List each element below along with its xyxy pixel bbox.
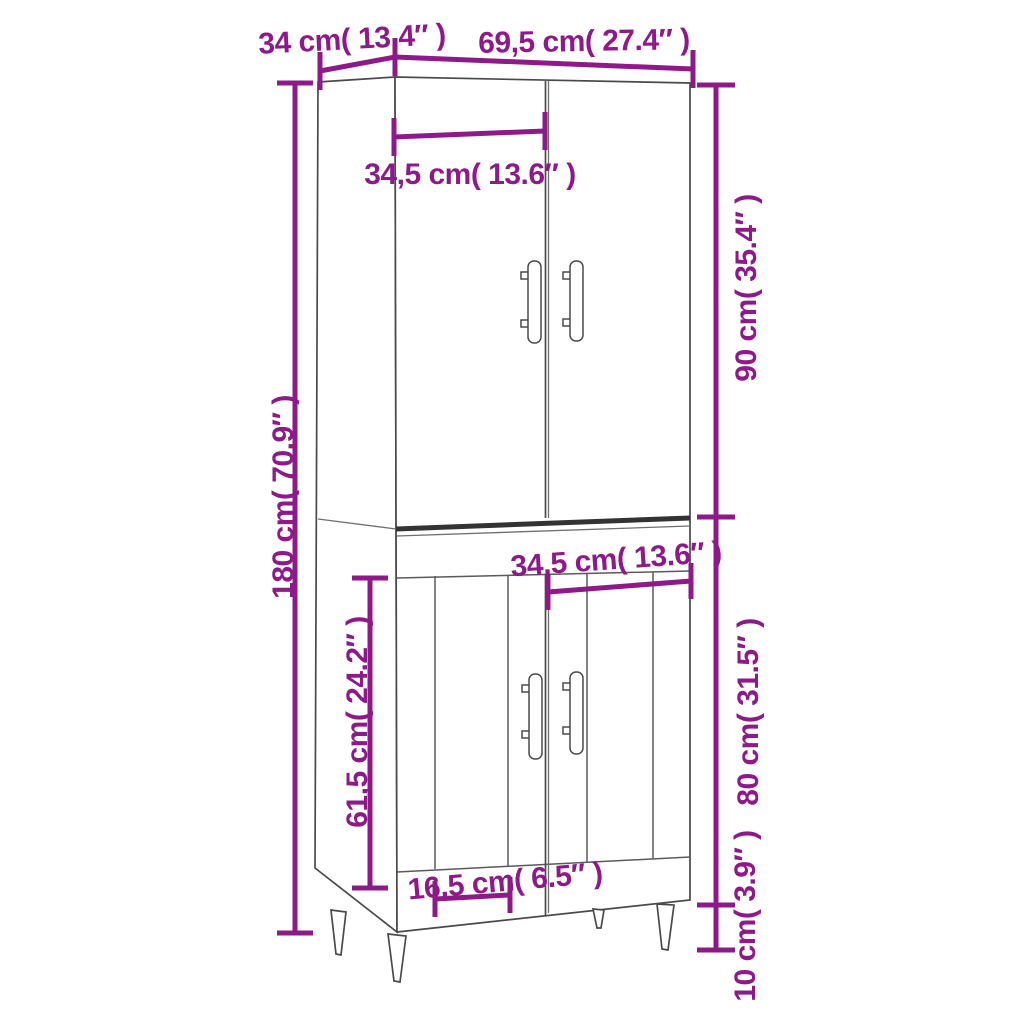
dim-label-upper-door-width: 34,5 cm( 13.6″ ): [364, 158, 576, 191]
leg-back-left: [331, 910, 346, 955]
dim-label-lower-section-height: 80 cm( 31.5″ ): [732, 618, 765, 805]
dim-label-top-width: 69,5 cm( 27.4″ ): [478, 23, 690, 60]
dim-label-upper-section-height: 90 cm( 35.4″ ): [730, 194, 763, 381]
handle-bar: [570, 672, 583, 754]
cabinet-front-face: [395, 77, 690, 932]
handle-bar: [528, 261, 541, 343]
dim-label-top-depth: 34 cm( 13.4″ ): [257, 18, 446, 61]
handle-bar: [529, 674, 542, 759]
leg-front-left: [388, 934, 406, 982]
dimension-diagram-page: 34 cm( 13.4″ ) 69,5 cm( 27.4″ ) 34,5 cm(…: [0, 0, 1024, 1024]
dim-label-lower-inner-height: 61,5 cm( 24.2″ ): [341, 616, 374, 828]
cabinet-dimension-diagram: 34 cm( 13.4″ ) 69,5 cm( 27.4″ ) 34,5 cm(…: [0, 0, 1024, 1024]
dim-label-total-height: 180 cm( 70.9″ ): [267, 395, 300, 599]
leg-back-right: [593, 909, 604, 928]
handle-bar: [570, 261, 583, 341]
leg-front-right: [657, 904, 674, 950]
dim-total-height: 180 cm( 70.9″ ): [267, 83, 313, 933]
dim-label-leg-height: 10 cm( 3.9″ ): [729, 830, 762, 1001]
